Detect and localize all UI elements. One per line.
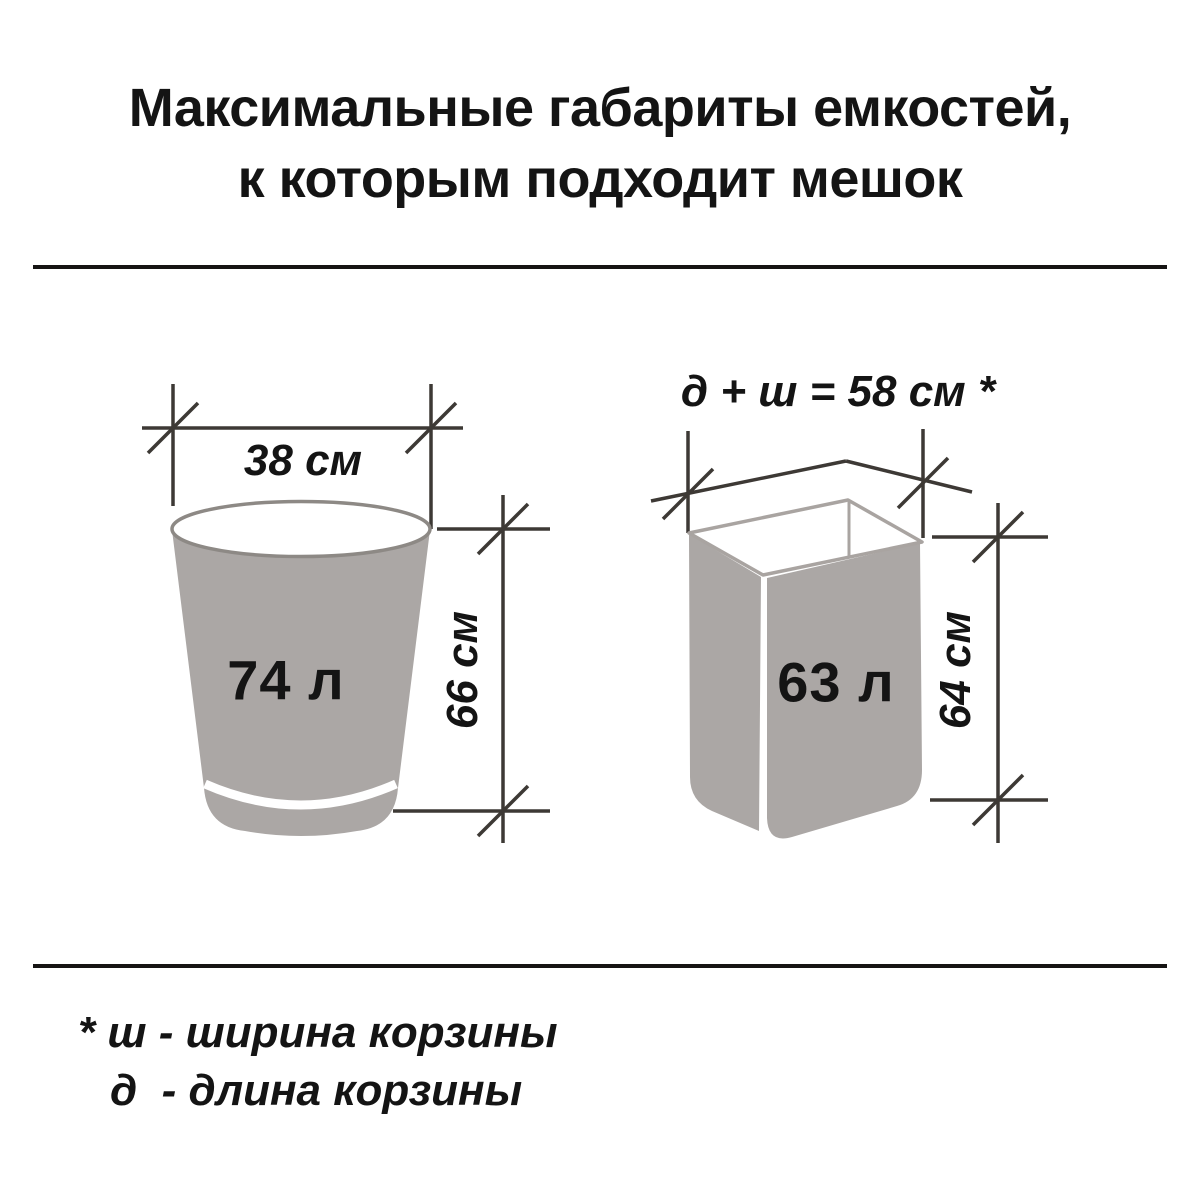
bucket-width-label: 38 см [244, 436, 362, 486]
footnote: * ш - ширина корзины д - длина корзины [78, 1008, 558, 1116]
basket-left-face [689, 534, 761, 831]
infographic-canvas: Максимальные габариты емкостей, к которы… [0, 0, 1200, 1200]
basket-height-label: 64 см [931, 611, 981, 729]
bucket-rim [172, 502, 430, 557]
bucket-volume-label: 74 л [227, 648, 344, 713]
basket-perimeter-label: д + ш = 58 см * [681, 367, 995, 417]
basket-volume-label: 63 л [777, 650, 894, 715]
footnote-line-1: * ш - ширина корзины [78, 1008, 558, 1058]
bucket-height-label: 66 см [438, 611, 488, 729]
footnote-line-2: д - длина корзины [110, 1066, 558, 1116]
